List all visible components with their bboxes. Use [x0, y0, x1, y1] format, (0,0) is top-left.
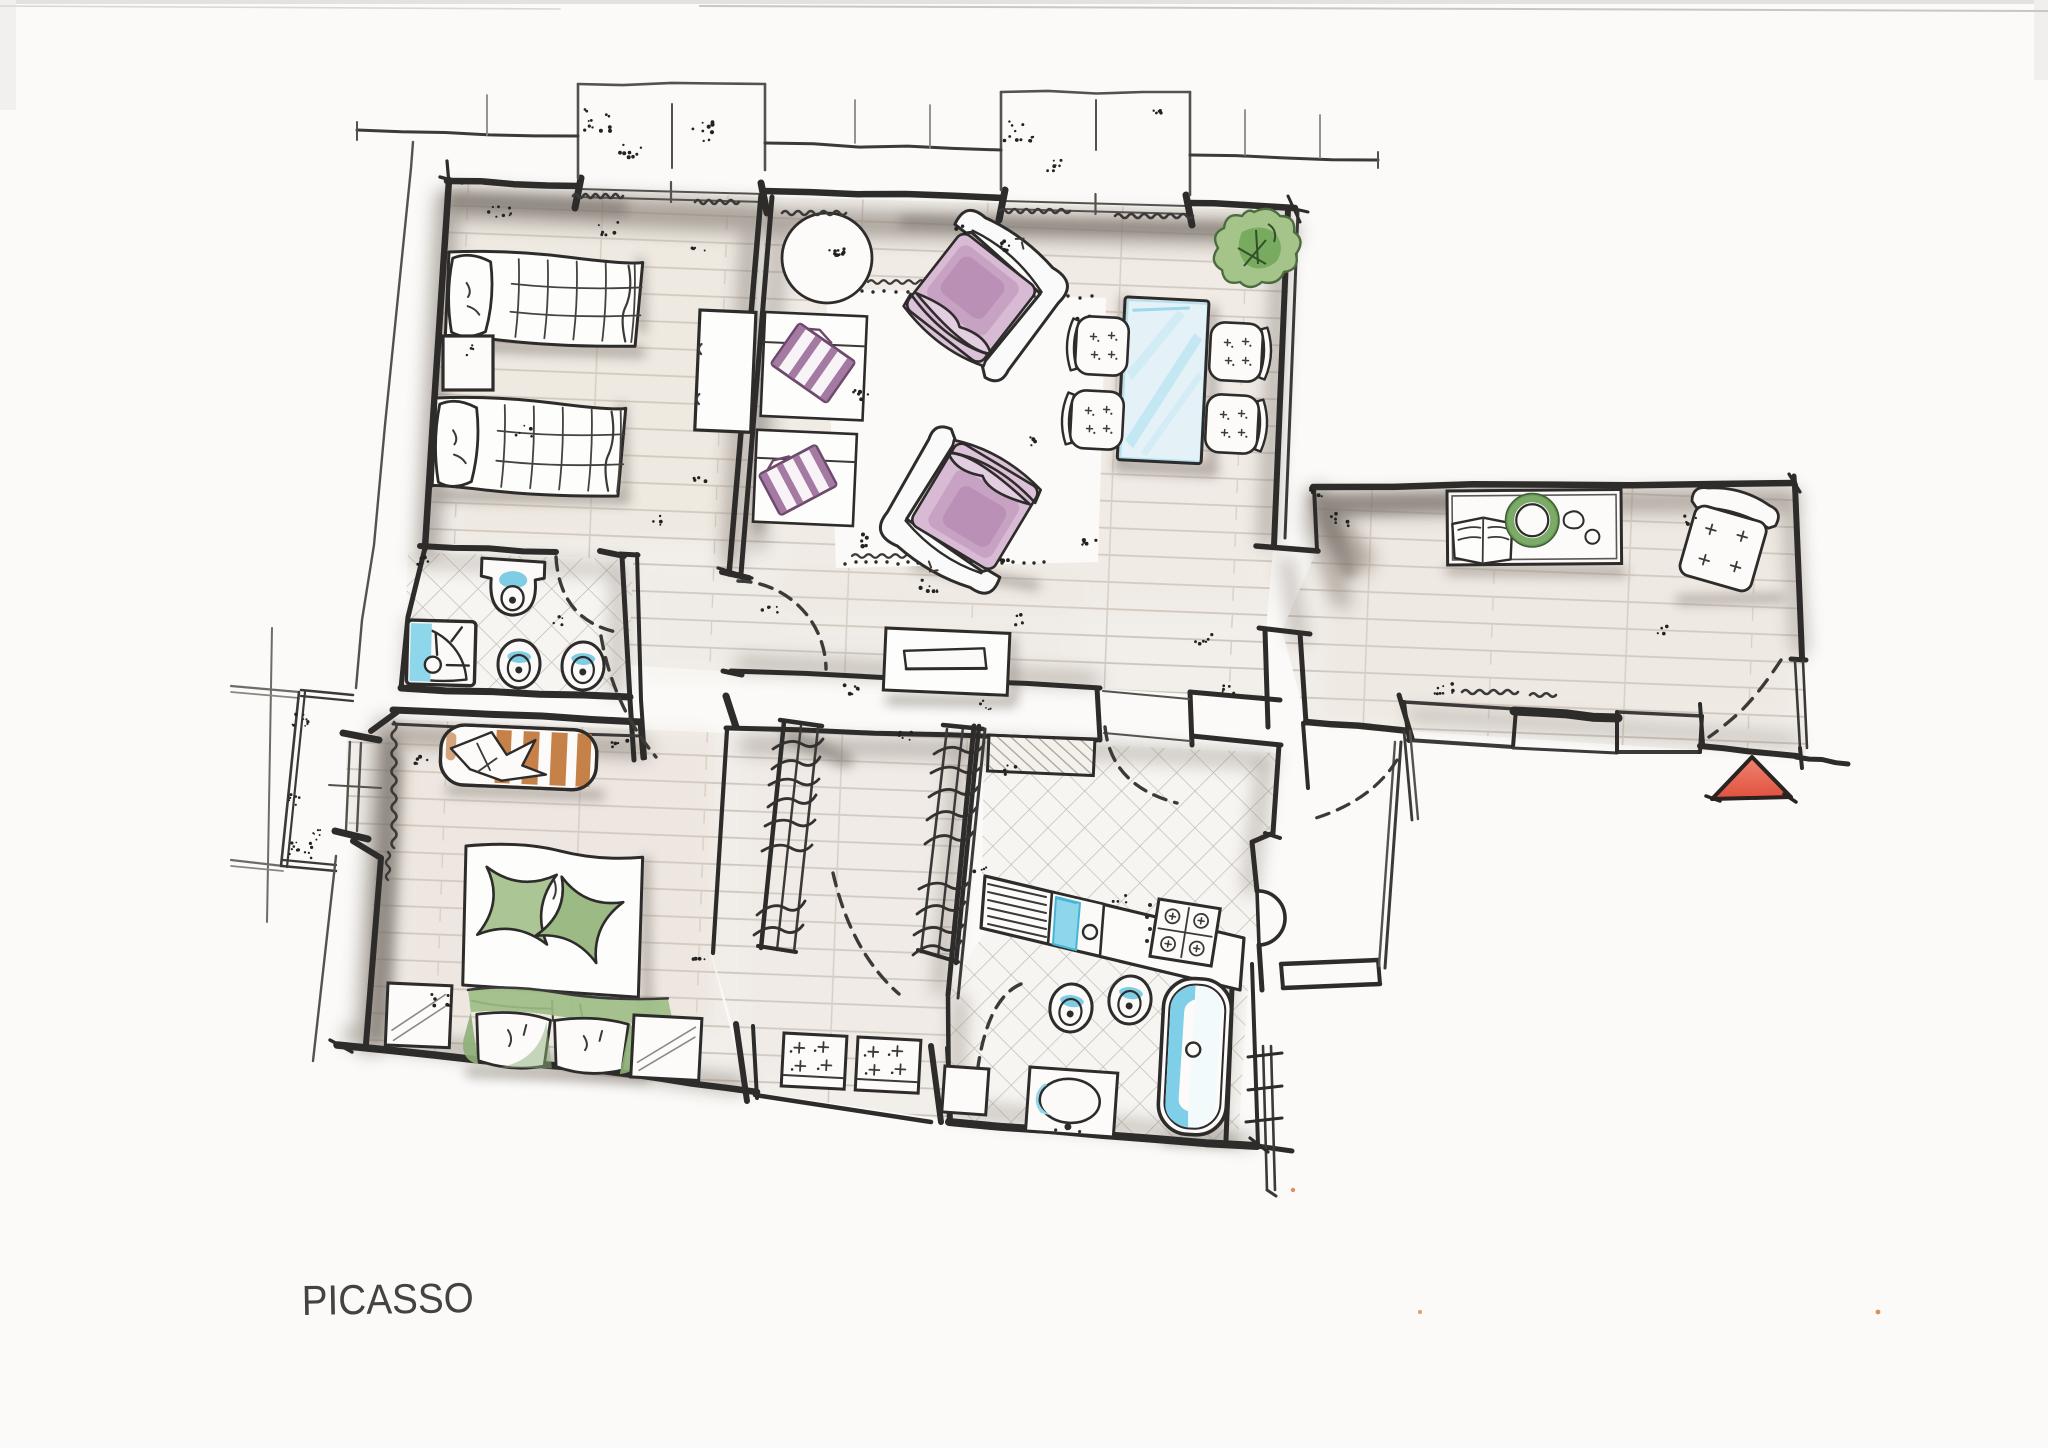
svg-text:PICASSO: PICASSO — [301, 1274, 474, 1324]
